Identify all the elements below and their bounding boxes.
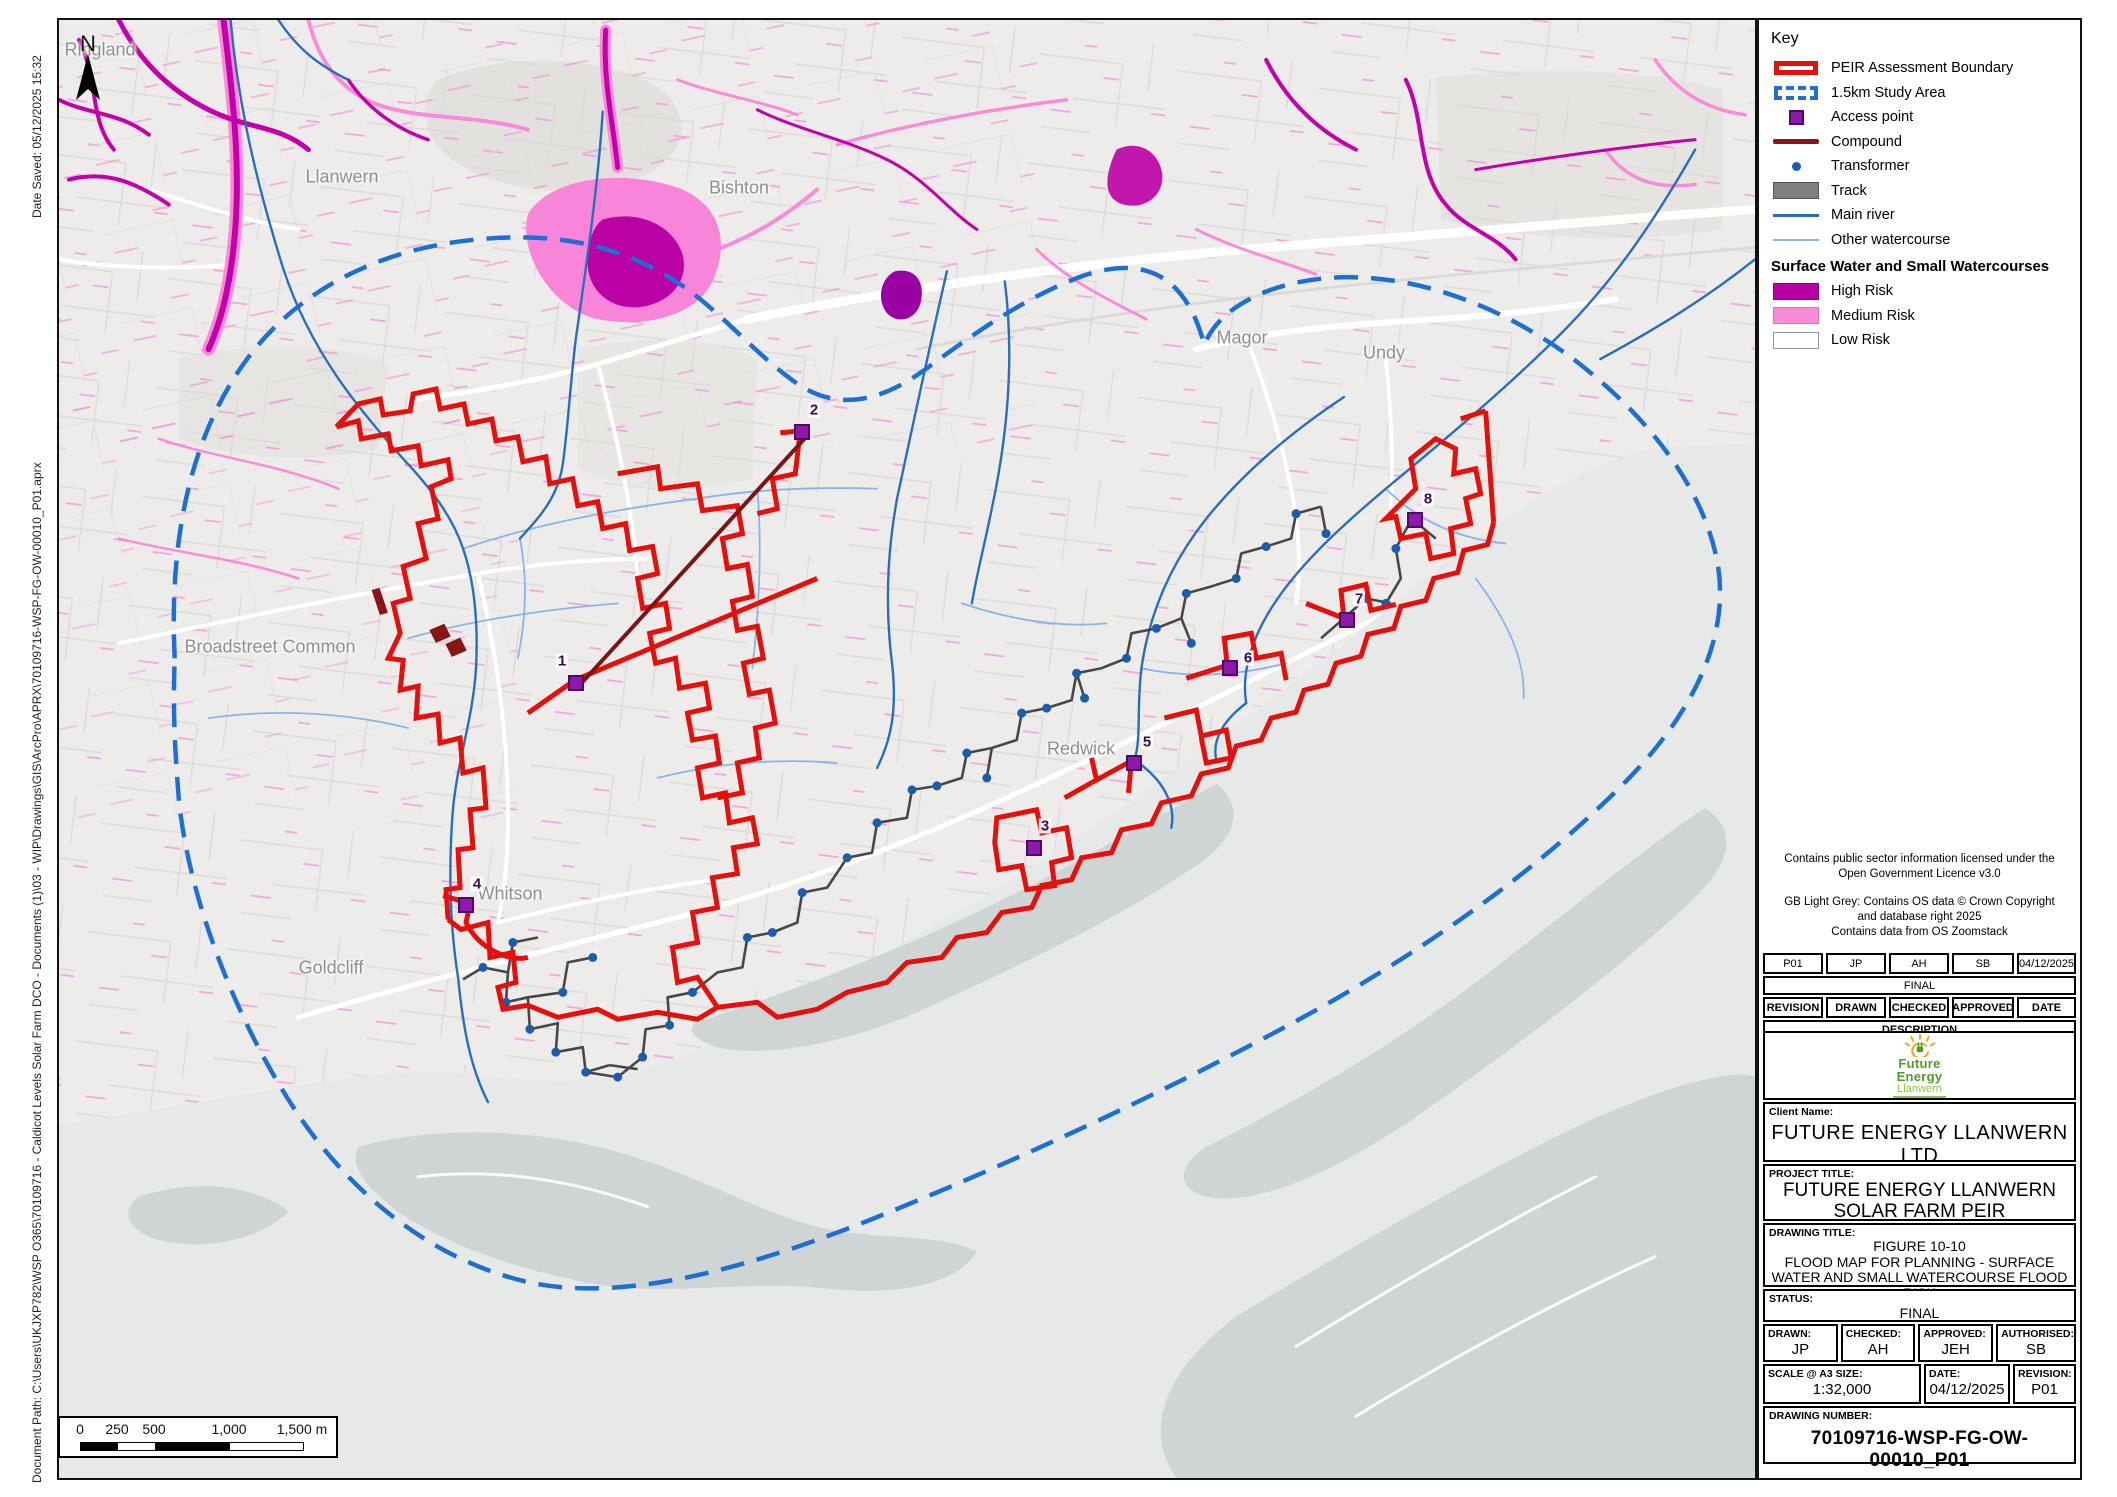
compound-swatch (1773, 139, 1819, 144)
authorised-value: SB (1998, 1341, 2074, 1358)
logo-text-energy: Energy (1897, 1070, 1943, 1083)
scale-bar: 0 250 500 1,000 1,500 m (58, 1416, 338, 1458)
authorised-cell: AUTHORISED: SB (1996, 1324, 2076, 1362)
drawing-title-line2: FLOOD MAP FOR PLANNING - SURFACE (1765, 1255, 2074, 1271)
approved-header: APPROVED (1952, 997, 2014, 1018)
drawn-value: JP (1826, 953, 1886, 974)
drawing-title-line1: FIGURE 10-10 (1765, 1239, 2074, 1255)
map-key: Key PEIR Assessment Boundary 1.5km Study… (1771, 30, 2072, 353)
copyright-notes: Contains public sector information licen… (1765, 852, 2074, 940)
date-header: DATE (2017, 997, 2076, 1018)
checked-label: CHECKED: (1843, 1326, 1914, 1340)
other-watercourse-swatch (1773, 239, 1819, 241)
client-label: Client Name: (1765, 1104, 2074, 1118)
scale-value: 1:32,000 (1765, 1381, 1919, 1398)
key-item-study-area: 1.5km Study Area (1771, 81, 2072, 106)
approved-label: APPROVED: (1920, 1326, 1991, 1340)
key-item-track: Track (1771, 179, 2072, 204)
project-title-label: PROJECT TITLE: (1765, 1166, 2074, 1180)
logo-text-llanwern: Llanwern (1893, 1083, 1946, 1098)
scale-label-500: 500 (142, 1421, 165, 1437)
description-value: FINAL (1763, 976, 2076, 995)
client-name: FUTURE ENERGY LLANWERN LTD (1765, 1122, 2074, 1168)
key-item-main-river: Main river (1771, 203, 2072, 228)
access-point-swatch (1789, 110, 1804, 125)
transformer-swatch (1792, 162, 1801, 171)
key-item-access-point: Access point (1771, 105, 2072, 130)
approved-value: JEH (1920, 1341, 1991, 1358)
drawn-label: DRAWN: (1765, 1326, 1836, 1340)
date-saved-text: Date Saved: 05/12/2025 15:32 (30, 55, 44, 218)
project-title-line1: FUTURE ENERGY LLANWERN (1765, 1180, 2074, 1201)
key-item-label: Access point (1831, 109, 1913, 125)
scale-label: SCALE @ A3 SIZE: (1765, 1366, 1919, 1380)
map-canvas (59, 20, 1755, 1478)
project-title-box: PROJECT TITLE: FUTURE ENERGY LLANWERN SO… (1763, 1164, 2076, 1221)
key-item-label: Transformer (1831, 158, 1909, 174)
key-item-low-risk: Low Risk (1771, 328, 2072, 353)
revision-label: REVISION: (2015, 1366, 2074, 1380)
drawing-title-label: DRAWING TITLE: (1765, 1225, 2074, 1239)
medium-risk-swatch (1773, 307, 1819, 324)
date-value: 04/12/2025 (1926, 1381, 2008, 1398)
key-item-label: PEIR Assessment Boundary (1831, 60, 2013, 76)
drawing-title-box: DRAWING TITLE: FIGURE 10-10 FLOOD MAP FO… (1763, 1223, 2076, 1287)
scale-row: SCALE @ A3 SIZE: 1:32,000 DATE: 04/12/20… (1763, 1364, 2076, 1404)
drawing-number-value: 70109716-WSP-FG-OW-00010_P01 (1765, 1428, 2074, 1472)
drawn-header: DRAWN (1826, 997, 1886, 1018)
drawn-value: JP (1765, 1341, 1836, 1358)
scale-label-1000: 1,000 (211, 1421, 246, 1437)
key-item-medium-risk: Medium Risk (1771, 304, 2072, 329)
logo-box: Future Energy Llanwern (1763, 1031, 2076, 1100)
scale-label-250: 250 (105, 1421, 128, 1437)
low-risk-swatch (1773, 332, 1819, 349)
revision-header: REVISION (1763, 997, 1823, 1018)
key-item-label: 1.5km Study Area (1831, 85, 1945, 101)
date-cell: DATE: 04/12/2025 (1924, 1364, 2010, 1404)
checked-value: AH (1889, 953, 1949, 974)
checked-value: AH (1843, 1341, 1914, 1358)
approved-cell: APPROVED: JEH (1918, 1324, 1993, 1362)
north-label: N (66, 34, 110, 54)
scale-bar-segments (80, 1442, 304, 1451)
key-item-label: Track (1831, 183, 1867, 199)
authorised-label: AUTHORISED: (1998, 1326, 2074, 1340)
approved-value: SB (1952, 953, 2014, 974)
date-label: DATE: (1926, 1366, 2008, 1380)
north-arrow: N (66, 34, 110, 102)
key-item-high-risk: High Risk (1771, 279, 2072, 304)
scale-cell: SCALE @ A3 SIZE: 1:32,000 (1763, 1364, 1921, 1404)
map-frame: RinglandLlanwernBishtonMagorUndyBroadstr… (57, 18, 1757, 1480)
checked-cell: CHECKED: AH (1841, 1324, 1916, 1362)
figure-page: Date Saved: 05/12/2025 15:32 Document Pa… (0, 0, 2117, 1497)
main-river-swatch (1773, 214, 1819, 217)
track-swatch (1773, 182, 1819, 199)
note-line: GB Light Grey: Contains OS data © Crown … (1765, 895, 2074, 910)
revision-value: P01 (1763, 953, 1823, 974)
status-box: STATUS: FINAL (1763, 1289, 2076, 1322)
key-item-label: High Risk (1831, 283, 1893, 299)
note-line: Open Government Licence v3.0 (1765, 867, 2074, 882)
date-value: 04/12/2025 (2017, 953, 2076, 974)
key-item-label: Other watercourse (1831, 232, 1950, 248)
checked-header: CHECKED (1889, 997, 1949, 1018)
note-line: and database right 2025 (1765, 910, 2074, 925)
people-row: DRAWN: JP CHECKED: AH APPROVED: JEH AUTH… (1763, 1324, 2076, 1362)
revision-table: P01 JP AH SB 04/12/2025 FINAL REVISION D… (1763, 953, 2076, 1041)
study-area-swatch (1774, 86, 1818, 100)
status-value: FINAL (1765, 1305, 2074, 1321)
key-item-label: Main river (1831, 207, 1895, 223)
key-item-compound: Compound (1771, 130, 2072, 155)
future-energy-sun-icon (1894, 1033, 1946, 1057)
key-item-label: Medium Risk (1831, 308, 1915, 324)
scale-label-0: 0 (76, 1421, 84, 1437)
note-line: Contains public sector information licen… (1765, 852, 2074, 867)
document-path-text: Document Path: C:\Users\UKJXP782\WSP O36… (30, 462, 44, 1483)
client-box: Client Name: FUTURE ENERGY LLANWERN LTD (1763, 1102, 2076, 1162)
note-line: Contains data from OS Zoomstack (1765, 925, 2074, 940)
high-risk-swatch (1773, 283, 1819, 300)
revision-value: P01 (2015, 1381, 2074, 1398)
key-item-label: Low Risk (1831, 332, 1890, 348)
project-title-line2: SOLAR FARM PEIR (1765, 1201, 2074, 1222)
side-panel: Key PEIR Assessment Boundary 1.5km Study… (1757, 18, 2082, 1480)
revision-cell: REVISION: P01 (2013, 1364, 2076, 1404)
scale-label-1500: 1,500 m (277, 1421, 328, 1437)
key-subheader: Surface Water and Small Watercourses (1771, 258, 2072, 275)
drawn-cell: DRAWN: JP (1763, 1324, 1838, 1362)
status-label: STATUS: (1765, 1291, 2074, 1305)
key-item-transformer: Transformer (1771, 154, 2072, 179)
key-title: Key (1771, 30, 2072, 48)
key-item-peir: PEIR Assessment Boundary (1771, 56, 2072, 81)
north-arrow-icon (73, 54, 103, 102)
drawing-number-box: DRAWING NUMBER: 70109716-WSP-FG-OW-00010… (1763, 1406, 2076, 1464)
key-item-other-watercourse: Other watercourse (1771, 228, 2072, 253)
key-item-label: Compound (1831, 134, 1902, 150)
drawing-number-label: DRAWING NUMBER: (1765, 1408, 2074, 1422)
peir-boundary-swatch (1774, 61, 1818, 75)
